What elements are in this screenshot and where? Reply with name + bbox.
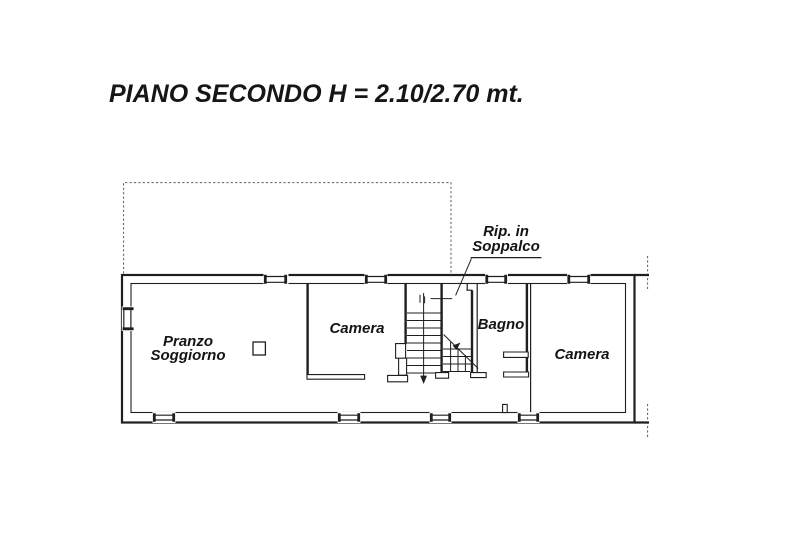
room-label-bagno: Bagno xyxy=(478,318,525,332)
annotation-line: Soppalco xyxy=(472,239,540,254)
room-label-line: Soggiorno xyxy=(151,349,226,363)
wall-extension-lines xyxy=(635,275,650,423)
room-label-pranzo-soggiorno: Pranzo Soggiorno xyxy=(151,335,226,362)
annotation-rip-in-soppalco: Rip. in Soppalco xyxy=(472,224,540,255)
room-label-camera-left: Camera xyxy=(329,322,384,336)
partition-walls-thin xyxy=(466,284,530,413)
wall-bars-and-jambs xyxy=(307,344,529,413)
pillar xyxy=(253,342,265,355)
floor-plan-page: PIANO SECONDO H = 2.10/2.70 mt. xyxy=(0,0,800,559)
room-label-camera-right: Camera xyxy=(554,348,609,362)
terrace-dashed-outline xyxy=(124,183,451,274)
annotation-line: Rip. in xyxy=(472,224,540,239)
stair-down-arrowhead xyxy=(420,376,427,384)
stair-treads xyxy=(407,313,471,373)
floor-plan-drawing xyxy=(0,0,800,559)
